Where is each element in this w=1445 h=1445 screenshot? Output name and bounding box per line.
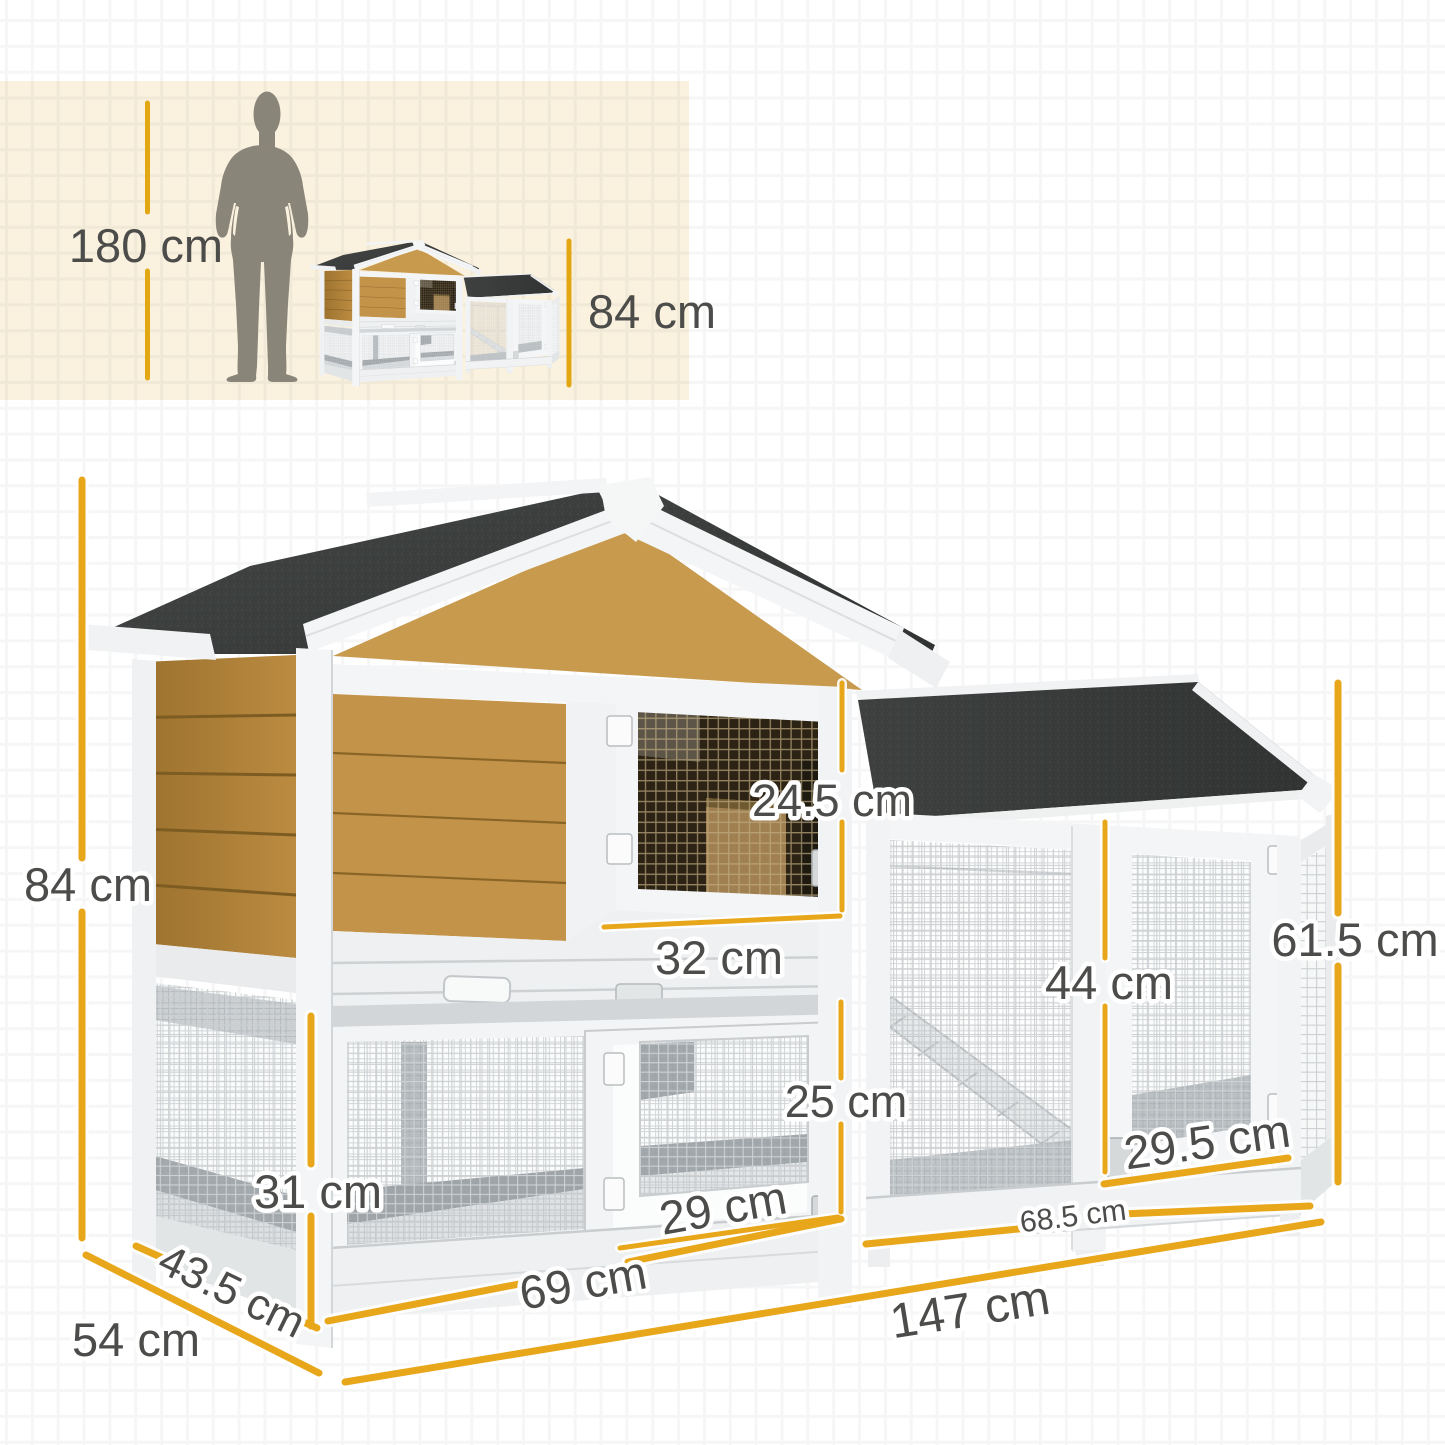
svg-text:44 cm: 44 cm	[1045, 956, 1173, 1009]
svg-text:31 cm: 31 cm	[254, 1165, 382, 1218]
svg-text:32 cm: 32 cm	[655, 931, 783, 984]
svg-text:84 cm: 84 cm	[588, 285, 716, 338]
svg-text:25 cm: 25 cm	[785, 1076, 908, 1127]
svg-text:54 cm: 54 cm	[72, 1313, 200, 1366]
svg-text:61.5 cm: 61.5 cm	[1271, 913, 1438, 966]
svg-text:84 cm: 84 cm	[24, 858, 152, 911]
svg-text:24.5 cm: 24.5 cm	[752, 775, 912, 826]
svg-text:180 cm: 180 cm	[69, 219, 223, 272]
